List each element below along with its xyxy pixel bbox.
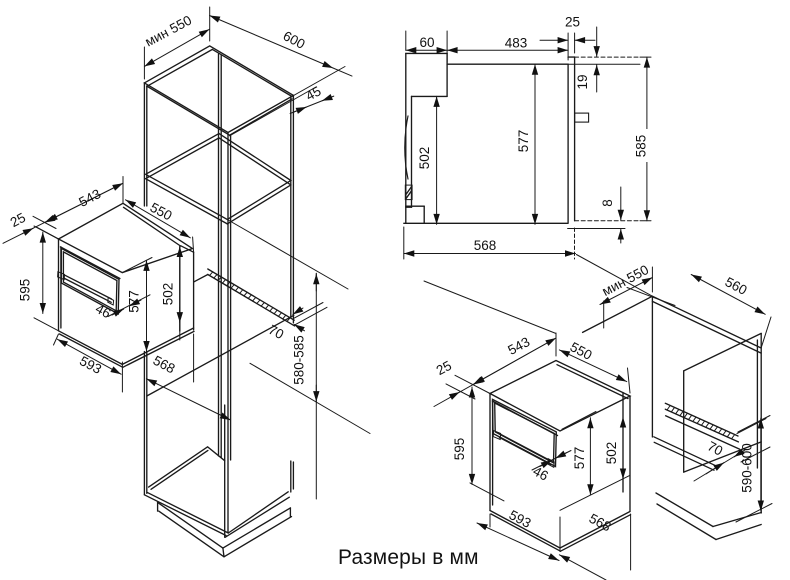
svg-text:Размеры в мм: Размеры в мм — [338, 546, 479, 569]
svg-text:580-585: 580-585 — [292, 335, 307, 385]
svg-text:568: 568 — [587, 511, 614, 535]
svg-text:568: 568 — [151, 353, 178, 377]
svg-text:577: 577 — [127, 290, 142, 313]
svg-text:550: 550 — [148, 200, 175, 224]
svg-text:70: 70 — [266, 322, 286, 342]
svg-text:585: 585 — [634, 135, 649, 158]
svg-text:46: 46 — [530, 463, 550, 483]
svg-text:568: 568 — [474, 238, 497, 253]
svg-text:593: 593 — [77, 353, 104, 377]
svg-text:502: 502 — [417, 147, 432, 170]
svg-text:8: 8 — [600, 199, 615, 207]
svg-text:19: 19 — [575, 74, 590, 89]
svg-text:595: 595 — [452, 438, 467, 461]
svg-text:577: 577 — [572, 447, 587, 470]
svg-text:590-600: 590-600 — [740, 443, 755, 493]
svg-text:560: 560 — [723, 274, 750, 298]
svg-text:25: 25 — [8, 210, 28, 230]
svg-text:45: 45 — [303, 83, 323, 103]
svg-text:600: 600 — [281, 28, 308, 52]
svg-text:502: 502 — [604, 442, 619, 465]
svg-text:543: 543 — [505, 334, 532, 358]
svg-text:483: 483 — [505, 36, 528, 51]
svg-text:60: 60 — [419, 35, 434, 50]
svg-text:543: 543 — [76, 186, 103, 210]
svg-text:25: 25 — [565, 15, 580, 30]
svg-text:577: 577 — [516, 130, 531, 153]
svg-text:550: 550 — [568, 339, 595, 363]
svg-text:595: 595 — [18, 279, 33, 302]
svg-text:502: 502 — [161, 283, 176, 306]
svg-text:25: 25 — [434, 358, 454, 378]
svg-text:мин 550: мин 550 — [143, 13, 195, 50]
svg-text:593: 593 — [507, 507, 534, 531]
